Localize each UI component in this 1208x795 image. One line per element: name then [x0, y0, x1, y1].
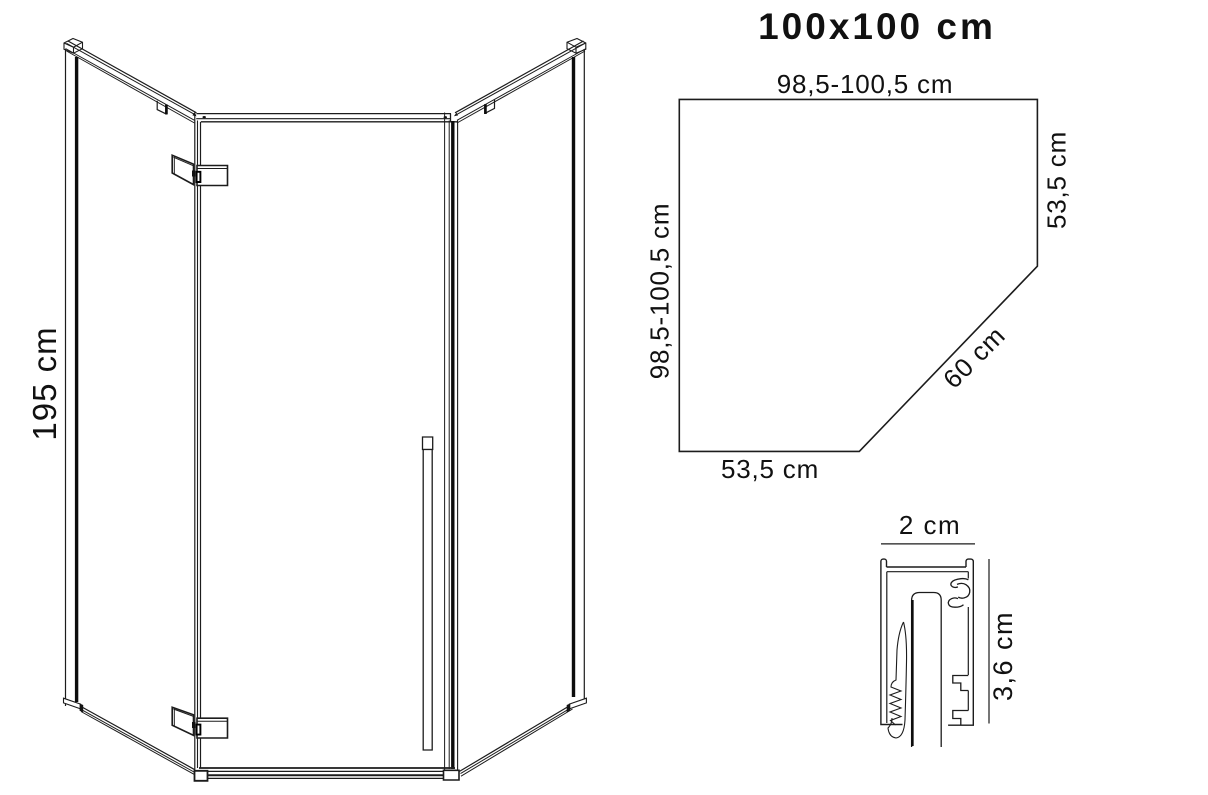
svg-text:98,5-100,5 cm: 98,5-100,5 cm: [777, 69, 954, 99]
svg-text:195 cm: 195 cm: [26, 326, 63, 440]
svg-text:3,6 cm: 3,6 cm: [988, 611, 1018, 701]
svg-text:53,5 cm: 53,5 cm: [721, 454, 819, 484]
svg-text:53,5 cm: 53,5 cm: [1042, 131, 1072, 229]
svg-text:2 cm: 2 cm: [899, 510, 961, 540]
svg-text:100x100 cm: 100x100 cm: [758, 6, 996, 47]
svg-text:98,5-100,5 cm: 98,5-100,5 cm: [645, 203, 675, 380]
